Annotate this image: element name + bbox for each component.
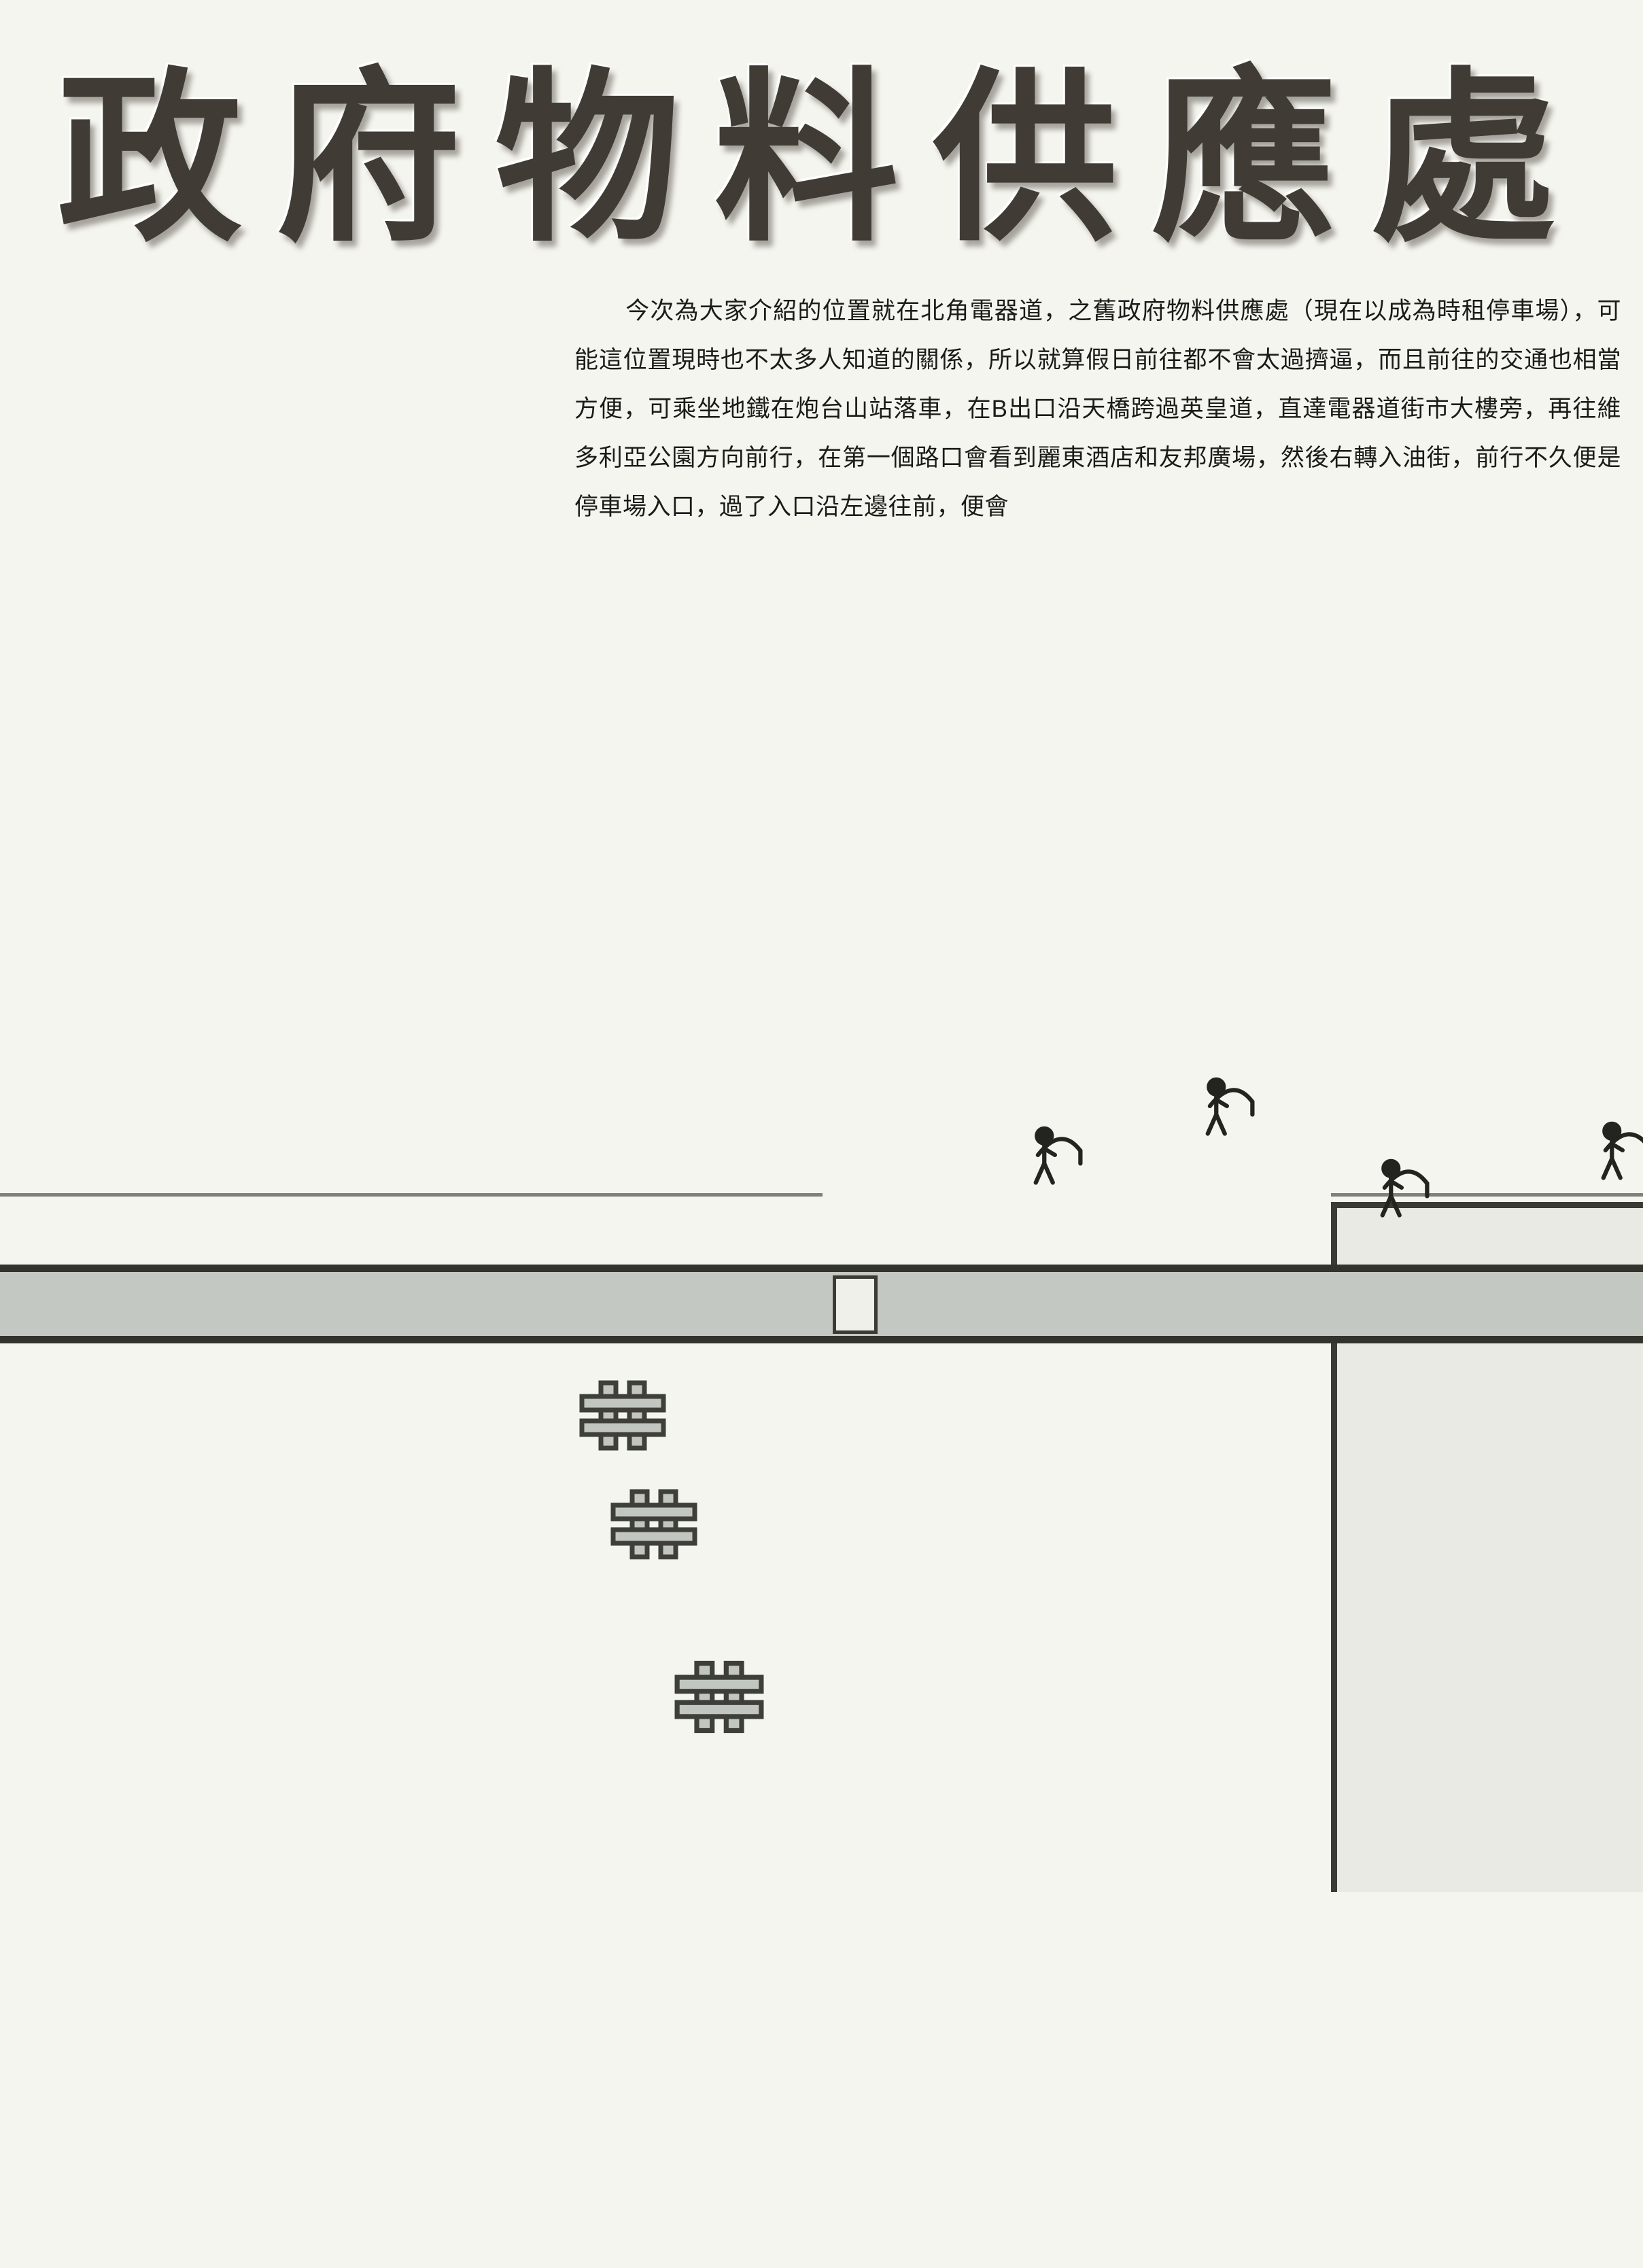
tree-dot xyxy=(0,0,27,23)
fishing-person-icon xyxy=(1195,1074,1263,1142)
fook-yum-road-road xyxy=(0,832,58,1153)
hash-building-icon xyxy=(579,1380,666,1451)
hash-building-icon xyxy=(674,1659,764,1735)
island-eastern-corridor-road xyxy=(0,1265,1643,1343)
page-title: 政府物料供應處 xyxy=(48,37,1599,248)
magazine-page: 政府物料供應處 今次為大家介紹的位置就在北角電器道，之舊政府物料供應處（現在以成… xyxy=(0,0,1643,2268)
electric-road-road xyxy=(0,783,1276,832)
fishing-person-icon xyxy=(1370,1156,1438,1224)
waterfront-white-area xyxy=(823,1193,1331,1268)
fishing-person-icon xyxy=(1023,1123,1091,1191)
intro-paragraph: 今次為大家介紹的位置就在北角電器道，之舊政府物料供應處（現在以成為時租停車場），… xyxy=(574,287,1621,532)
fishing-person-icon xyxy=(1591,1118,1643,1186)
corridor-pier xyxy=(833,1275,878,1334)
hash-building-icon xyxy=(610,1489,697,1560)
